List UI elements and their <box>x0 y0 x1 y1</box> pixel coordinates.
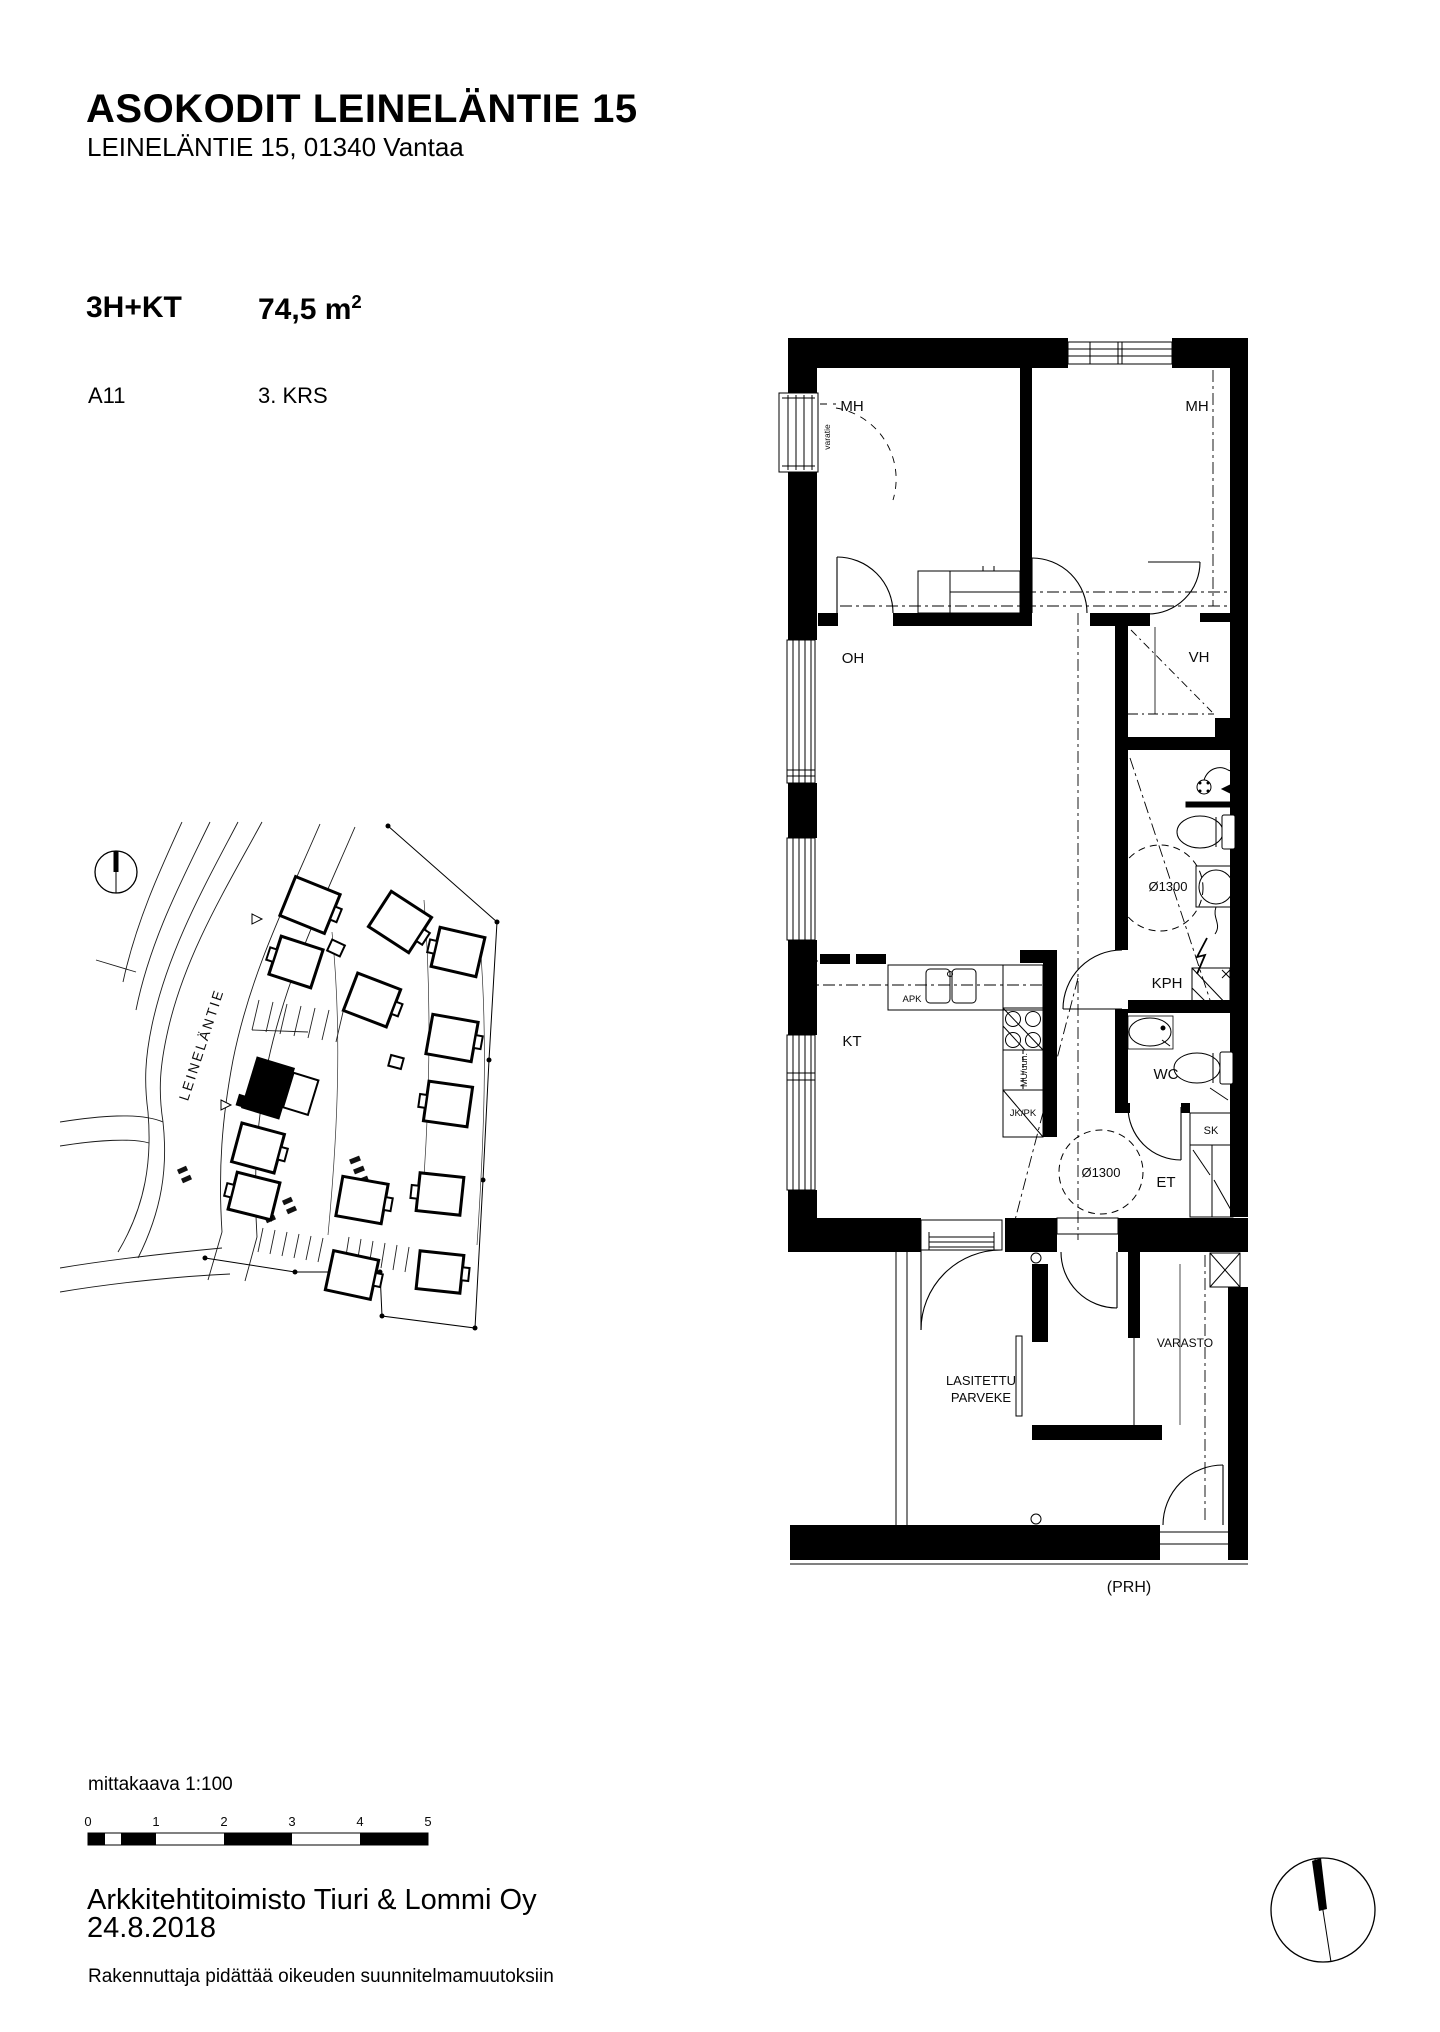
room-label-balcony-1: LASITETTU <box>946 1373 1016 1388</box>
apartment-type: 3H+KT <box>86 291 182 325</box>
room-label-mh-left: MH <box>840 398 863 415</box>
door-front <box>1061 1252 1117 1308</box>
room-label-oh: OH <box>842 650 865 667</box>
scale-tick-labels: 0 1 2 3 4 5 <box>84 1814 431 1829</box>
door-mh-left <box>837 557 893 613</box>
room-label-kph: KPH <box>1152 975 1183 992</box>
disclaimer-text: Rakennuttaja pidättää oikeuden suunnitel… <box>88 1966 554 1988</box>
area-value: 74,5 m <box>258 293 351 326</box>
varatie-label: varatie <box>822 424 832 450</box>
stove-icon <box>1003 1008 1043 1050</box>
thin-lines <box>790 1252 1248 1564</box>
door-kph <box>1063 950 1122 1009</box>
room-label-sk: SK <box>1204 1125 1219 1137</box>
kph-circle-label: Ø1300 <box>1148 879 1187 894</box>
scale-bar-segments <box>88 1833 428 1845</box>
tick-3: 3 <box>288 1814 295 1829</box>
room-label-wc: WC <box>1154 1066 1179 1083</box>
area-exponent: 2 <box>351 291 361 312</box>
toilet-kph-icon <box>1177 815 1235 849</box>
room-label-varasto: VARASTO <box>1157 1336 1213 1350</box>
tick-5: 5 <box>424 1814 431 1829</box>
window-kt-lower <box>787 1035 815 1190</box>
annotation-labels: varatie Ø1300 Ø1300 APK MU/uun. JK/PK <box>822 424 1188 1180</box>
apartment-storey: 3. KRS <box>258 383 328 409</box>
north-indicator-icon <box>95 851 137 893</box>
drawing-sheet: ASOKODIT LEINELÄNTIE 15 LEINELÄNTIE 15, … <box>0 0 1440 2032</box>
room-label-vh: VH <box>1189 649 1210 666</box>
windows <box>779 342 1172 1250</box>
varatie-swing <box>820 404 896 500</box>
door-wc <box>1128 1107 1181 1160</box>
tick-1: 1 <box>152 1814 159 1829</box>
shaft-box <box>1210 1253 1240 1287</box>
washbasin-wc-icon <box>1128 1016 1173 1049</box>
scale-label: mittakaava 1:100 <box>88 1774 233 1796</box>
mu-label: MU/uun. <box>1019 1053 1029 1087</box>
apk-label: APK <box>902 994 922 1005</box>
tick-2: 2 <box>220 1814 227 1829</box>
window-oh <box>787 640 815 783</box>
room-label-kt: KT <box>842 1033 861 1050</box>
jkpk-label: JK/PK <box>1010 1108 1037 1119</box>
site-plan: LEINELÄNTIE <box>60 820 540 1400</box>
window-balcony <box>921 1220 1002 1250</box>
lightning-icon <box>1197 938 1207 974</box>
apartment-area: 74,5 m2 <box>258 291 362 327</box>
compass-icon <box>1262 1848 1387 1973</box>
room-label-mh-right: MH <box>1185 398 1208 415</box>
toilet-wc-icon <box>1174 1052 1233 1084</box>
wc-fixtures <box>1128 1016 1233 1100</box>
page-subtitle: LEINELÄNTIE 15, 01340 Vantaa <box>87 132 464 163</box>
shelf <box>1186 802 1236 807</box>
room-label-balcony-2: PARVEKE <box>951 1390 1012 1405</box>
drawing-date: 24.8.2018 <box>87 1912 216 1945</box>
doors <box>837 557 1223 1525</box>
svg-text:LEINELÄNTIE: LEINELÄNTIE <box>176 986 227 1102</box>
door-mh-right-a <box>1032 558 1087 613</box>
window-kt-upper <box>787 838 815 940</box>
room-label-prh: (PRH) <box>1107 1579 1151 1596</box>
tick-0: 0 <box>84 1814 91 1829</box>
door-balcony <box>921 1250 1001 1330</box>
window-top <box>1068 342 1172 364</box>
vh-interior <box>1128 627 1214 714</box>
door-stairwell <box>1163 1465 1223 1525</box>
floor-plan: MH MH OH VH KPH WC KT ET SK VARASTO LASI… <box>778 330 1256 1620</box>
front-door-frame <box>1057 1218 1118 1234</box>
page-title: ASOKODIT LEINELÄNTIE 15 <box>86 87 638 132</box>
tick-4: 4 <box>356 1814 363 1829</box>
highlighted-building <box>235 1055 320 1128</box>
room-label-et: ET <box>1156 1174 1175 1191</box>
scale-bar: 0 1 2 3 4 5 <box>80 1800 450 1860</box>
street-name: LEINELÄNTIE <box>176 986 227 1102</box>
sink-icon <box>926 969 976 1003</box>
window-varatie-mh <box>779 393 818 472</box>
apartment-number: A11 <box>88 383 126 409</box>
et-circle-label: Ø1300 <box>1081 1165 1120 1180</box>
